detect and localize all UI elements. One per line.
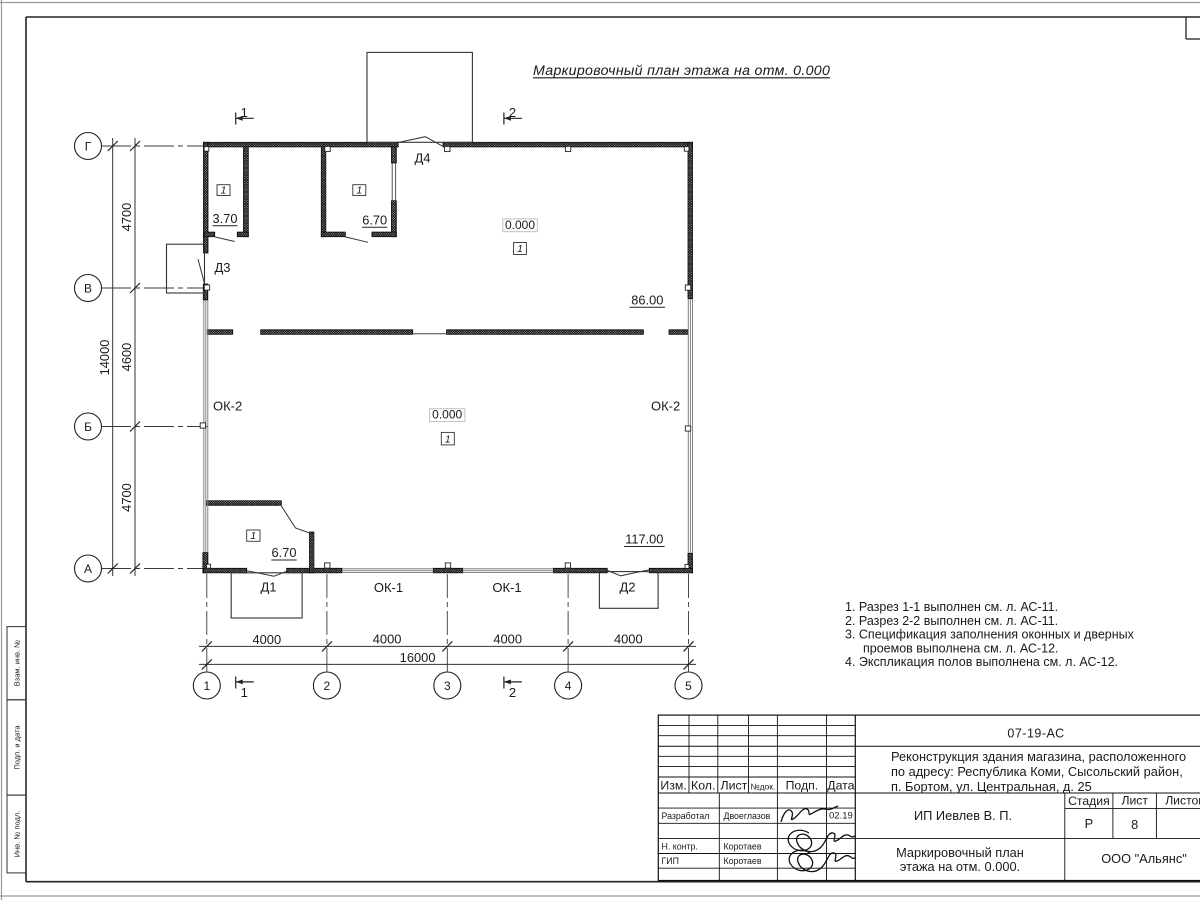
svg-text:1: 1: [241, 105, 248, 120]
svg-text:6.70: 6.70: [362, 212, 387, 227]
svg-text:Маркировочный план: Маркировочный план: [896, 845, 1024, 860]
svg-text:2: 2: [509, 105, 516, 120]
svg-text:Д3: Д3: [214, 260, 230, 275]
svg-text:1. Разрез 1-1 выполнен см. л.: 1. Разрез 1-1 выполнен см. л. АС-11.: [845, 600, 1058, 614]
svg-text:Маркировочный план этажа на от: Маркировочный план этажа на отм. 0.000: [533, 63, 830, 79]
svg-text:4700: 4700: [119, 203, 134, 232]
svg-text:14000: 14000: [97, 340, 112, 376]
svg-text:по адресу: Республика Коми, Сы: по адресу: Республика Коми, Сысольский р…: [891, 764, 1183, 779]
svg-text:07-19-АС: 07-19-АС: [1007, 727, 1064, 741]
svg-text:117.00: 117.00: [625, 532, 663, 547]
svg-text:8: 8: [1131, 817, 1138, 832]
svg-text:Стадия: Стадия: [1068, 794, 1110, 808]
svg-text:Г: Г: [85, 139, 92, 153]
svg-text:1: 1: [241, 685, 248, 700]
svg-text:Двоеглазов: Двоеглазов: [724, 811, 771, 821]
svg-text:3.70: 3.70: [213, 211, 238, 226]
svg-text:Н. контр.: Н. контр.: [662, 842, 698, 852]
svg-text:проемов выполнена см. л. АС-12: проемов выполнена см. л. АС-12.: [863, 641, 1059, 655]
svg-text:Коротаев: Коротаев: [724, 842, 762, 852]
svg-text:Д4: Д4: [414, 151, 430, 166]
svg-text:ОК-1: ОК-1: [492, 580, 521, 595]
svg-text:Листов: Листов: [1165, 794, 1200, 808]
svg-text:ОК-2: ОК-2: [213, 399, 242, 414]
svg-text:6.70: 6.70: [272, 545, 297, 560]
svg-text:Д1: Д1: [260, 580, 276, 595]
svg-text:2: 2: [509, 685, 516, 700]
svg-text:Разработал: Разработал: [662, 811, 710, 821]
svg-text:Лист: Лист: [721, 778, 748, 792]
svg-text:Реконструкция здания магазина,: Реконструкция здания магазина, расположе…: [891, 749, 1186, 764]
svg-text:0.000: 0.000: [432, 408, 462, 422]
svg-text:Подп. и дата: Подп. и дата: [13, 725, 22, 770]
svg-text:В: В: [84, 281, 92, 295]
svg-text:4. Экспликация полов выполнена: 4. Экспликация полов выполнена см. л. АС…: [845, 655, 1118, 669]
svg-text:4: 4: [565, 679, 572, 693]
svg-text:0.000: 0.000: [505, 218, 535, 232]
svg-text:1: 1: [203, 679, 210, 693]
svg-text:Взам. инв. №: Взам. инв. №: [13, 640, 22, 686]
svg-text:86.00: 86.00: [631, 293, 663, 308]
svg-text:Р: Р: [1085, 816, 1094, 831]
svg-text:2: 2: [324, 679, 331, 693]
svg-text:Подп.: Подп.: [786, 778, 819, 792]
svg-text:№док.: №док.: [750, 781, 775, 791]
svg-text:п. Бортом, ул. Центральная, д.: п. Бортом, ул. Центральная, д. 25: [891, 779, 1092, 794]
svg-text:ГИП: ГИП: [662, 856, 679, 866]
svg-text:5: 5: [685, 679, 692, 693]
svg-text:Б: Б: [84, 420, 92, 434]
svg-text:Лист: Лист: [1121, 794, 1148, 808]
svg-text:А: А: [84, 562, 92, 576]
svg-text:4600: 4600: [119, 343, 134, 372]
svg-text:1: 1: [445, 434, 451, 445]
svg-text:1: 1: [221, 186, 227, 197]
svg-text:ООО "Альянс": ООО "Альянс": [1101, 851, 1187, 866]
svg-text:этажа на отм. 0.000.: этажа на отм. 0.000.: [900, 859, 1020, 874]
svg-text:Дата: Дата: [827, 778, 854, 792]
svg-text:3: 3: [444, 679, 451, 693]
svg-text:4000: 4000: [373, 632, 402, 647]
svg-text:16000: 16000: [400, 650, 436, 665]
svg-text:02.19: 02.19: [829, 811, 853, 822]
svg-text:4700: 4700: [119, 483, 134, 512]
svg-text:1: 1: [356, 186, 362, 197]
svg-text:4000: 4000: [493, 632, 522, 647]
svg-text:1: 1: [517, 244, 523, 255]
svg-text:Инв. № подл.: Инв. № подл.: [13, 811, 22, 858]
svg-text:3. Спецификация заполнения око: 3. Спецификация заполнения оконных и две…: [845, 628, 1135, 642]
svg-text:1: 1: [250, 531, 256, 542]
svg-text:4000: 4000: [252, 632, 281, 647]
svg-text:Коротаев: Коротаев: [724, 856, 762, 866]
svg-text:Изм.: Изм.: [660, 779, 686, 793]
svg-text:ОК-2: ОК-2: [651, 399, 680, 414]
svg-text:Д2: Д2: [619, 579, 635, 594]
svg-text:4000: 4000: [614, 632, 643, 647]
svg-text:ИП Иевлев В. П.: ИП Иевлев В. П.: [914, 808, 1012, 823]
svg-text:ОК-1: ОК-1: [374, 580, 403, 595]
svg-text:2. Разрез 2-2 выполнен см. л.: 2. Разрез 2-2 выполнен см. л. АС-11.: [845, 614, 1058, 628]
svg-text:Кол.: Кол.: [691, 778, 715, 792]
